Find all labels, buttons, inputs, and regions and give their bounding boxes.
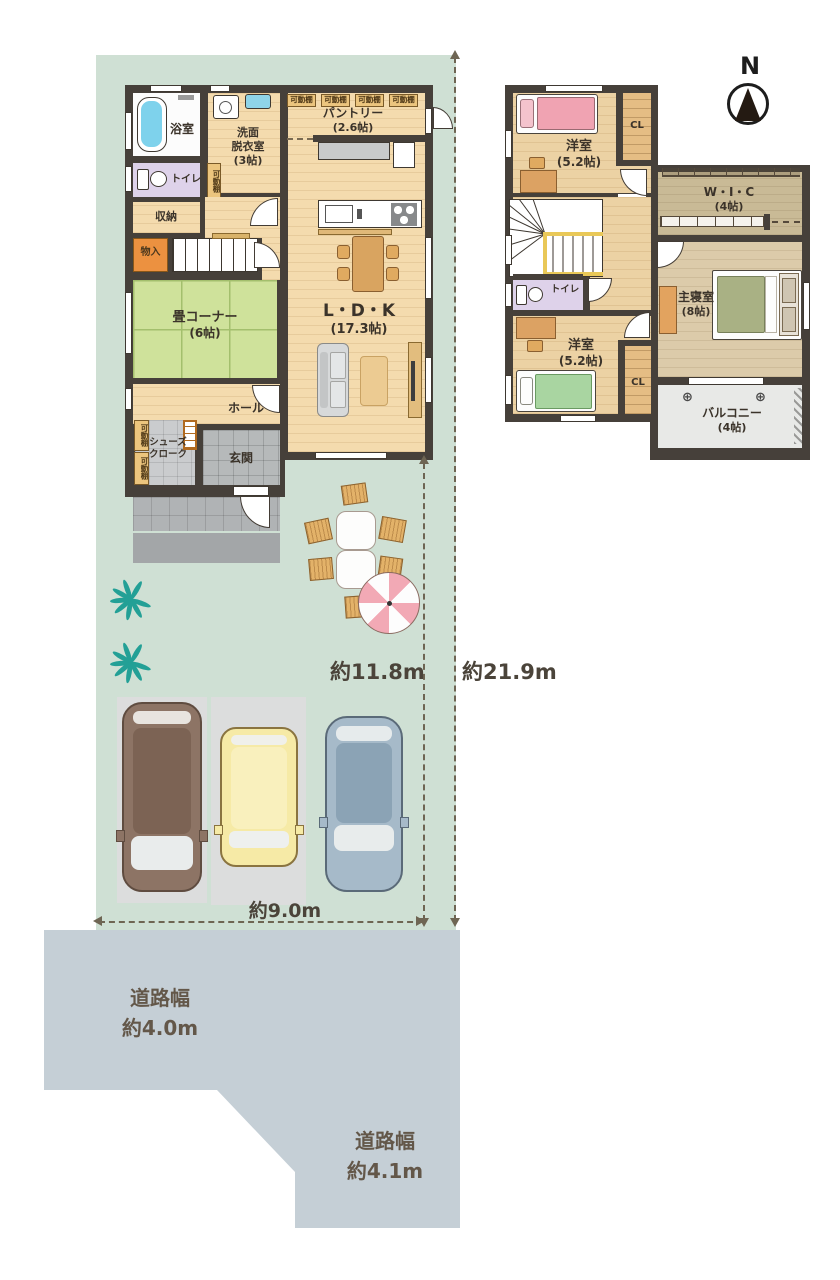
window (315, 452, 387, 459)
closet-rod-dashed (772, 221, 800, 223)
entrance-door-opening (233, 486, 269, 496)
stair-handrail (212, 233, 250, 239)
window (505, 375, 512, 405)
dimension-line-lot-depth (454, 57, 456, 921)
car-blue (325, 716, 403, 892)
tv-icon (411, 361, 415, 401)
car-mirror (295, 825, 304, 835)
window (425, 237, 432, 299)
dining-table (352, 236, 384, 292)
wall-segment (513, 274, 583, 280)
arrowhead (450, 918, 460, 927)
bed-single-pink (516, 94, 598, 134)
room-label-master: 主寝室 (8帖) (670, 290, 722, 319)
room-label-washroom: 洗面 脱衣室 (3帖) (218, 126, 278, 167)
sink-icon (245, 94, 271, 109)
window (545, 85, 603, 92)
road-width-bottom-label: 道路幅 約4.1m (310, 1126, 460, 1186)
toilet-bowl-icon (528, 287, 543, 302)
car-brown (122, 702, 202, 892)
garden-chair (308, 557, 334, 581)
room-label-shoes-closet: シューズ クローク (144, 437, 192, 461)
room-label-wic: W・I・C (4帖) (696, 185, 762, 214)
washing-machine-icon (213, 95, 239, 119)
room-label-ldk: L・D・K (17.3帖) (314, 301, 404, 339)
window (210, 85, 230, 92)
parasol-icon (358, 572, 420, 634)
road-width-left-label: 道路幅 約4.0m (95, 983, 225, 1043)
room-label-bedroom-south: 洋室 (5.2帖) (550, 338, 612, 369)
wall-segment (313, 135, 425, 142)
arrowhead (93, 916, 102, 926)
toilet-tank-icon (516, 285, 527, 305)
balcony-drain-icon: ⊕ (682, 390, 693, 405)
room-label-pantry: パントリー (2.6帖) (313, 106, 393, 135)
car-mirror (400, 817, 409, 828)
sofa (317, 343, 349, 417)
car-mirror (214, 825, 223, 835)
shelf-tag: 可動棚 (287, 94, 316, 107)
closet-rod (660, 216, 764, 227)
toilet-bowl-icon (150, 171, 167, 187)
room-label-storage: 収納 (144, 210, 188, 224)
floor-plan-page: 道路幅 約4.0m 道路幅 約4.1m N 可動棚 可動棚 可動棚 可動棚 可動… (0, 0, 840, 1280)
closet-rod (662, 168, 800, 177)
room-label-balcony: バルコニー (4帖) (694, 406, 770, 435)
toilet-tank-icon (137, 169, 149, 190)
room-label-entrance: 玄関 (219, 451, 263, 466)
closet-label: CL (626, 377, 650, 390)
room-label-small-closet: 物入 (134, 247, 167, 260)
car-mirror (199, 830, 208, 842)
car-yellow (220, 727, 298, 867)
room-label-tatami: 畳コーナー (6帖) (163, 310, 247, 341)
wall-segment (616, 93, 623, 163)
compass-needle (735, 88, 761, 121)
car-mirror (319, 817, 328, 828)
compass-icon (727, 83, 769, 125)
shower-fixture-icon (178, 95, 194, 100)
arrowhead (416, 916, 425, 926)
window (125, 388, 132, 410)
garden-chair (378, 516, 407, 543)
bed-double (712, 270, 802, 340)
shelf-tag: 可動棚 (207, 163, 221, 199)
kitchen-sink-icon (325, 205, 353, 223)
dining-chair (386, 267, 399, 281)
car-mirror (116, 830, 125, 842)
room-label-toilet-2f: トイレ (546, 284, 584, 296)
closet-label: CL (624, 120, 650, 133)
dining-chair (337, 245, 350, 259)
stairs-2f (509, 199, 603, 277)
kitchen-counter (318, 142, 390, 160)
dimension-label-width: 約9.0m (243, 896, 327, 923)
kitchen-counter-front (318, 229, 392, 235)
balcony-drain-icon: ⊕ (755, 390, 766, 405)
arrowhead (419, 455, 429, 464)
faucet-icon (357, 209, 362, 219)
arrowhead (450, 50, 460, 59)
window (125, 292, 132, 354)
balcony-rail-hatch (794, 388, 802, 444)
window (425, 108, 432, 134)
palm-plant-icon (110, 646, 152, 680)
rug (360, 356, 388, 406)
dimension-label-house-depth: 約11.8m (330, 656, 416, 686)
balcony-sliding-door (688, 377, 764, 385)
window (425, 357, 432, 403)
dining-chair (337, 267, 350, 281)
bed-single-green (516, 370, 596, 412)
kitchen-island (318, 200, 422, 228)
dimension-line-house-depth (423, 463, 425, 921)
garden-chair (341, 482, 369, 505)
compass-north-label: N (735, 52, 765, 80)
stove-icon (391, 203, 417, 226)
window (803, 282, 810, 330)
stairs-1f (172, 238, 258, 272)
room-label-hall: ホール (224, 401, 268, 416)
dimension-label-lot-depth: 約21.9m (462, 656, 557, 686)
window (505, 130, 512, 158)
palm-plant-icon (110, 583, 152, 617)
window (125, 166, 132, 192)
tv-board (408, 342, 422, 418)
wall-segment (764, 214, 770, 230)
wall-segment (616, 160, 651, 166)
refrigerator-icon (393, 142, 415, 168)
pantry-open-boundary (287, 138, 313, 140)
wall-segment (618, 340, 651, 346)
window (505, 235, 512, 265)
entrance-porch-step (133, 533, 280, 563)
window (125, 112, 132, 150)
window (560, 415, 596, 422)
room-label-bedroom-north: 洋室 (5.2帖) (548, 139, 610, 170)
room-label-bathroom: 浴室 (160, 122, 204, 137)
room-label-toilet-1f: トイレ (166, 174, 206, 187)
window (505, 283, 512, 307)
wall-segment (618, 345, 625, 414)
shelf-tag: 可動棚 (389, 94, 418, 107)
dining-chair (386, 245, 399, 259)
window (150, 85, 182, 92)
garden-table (336, 511, 376, 550)
